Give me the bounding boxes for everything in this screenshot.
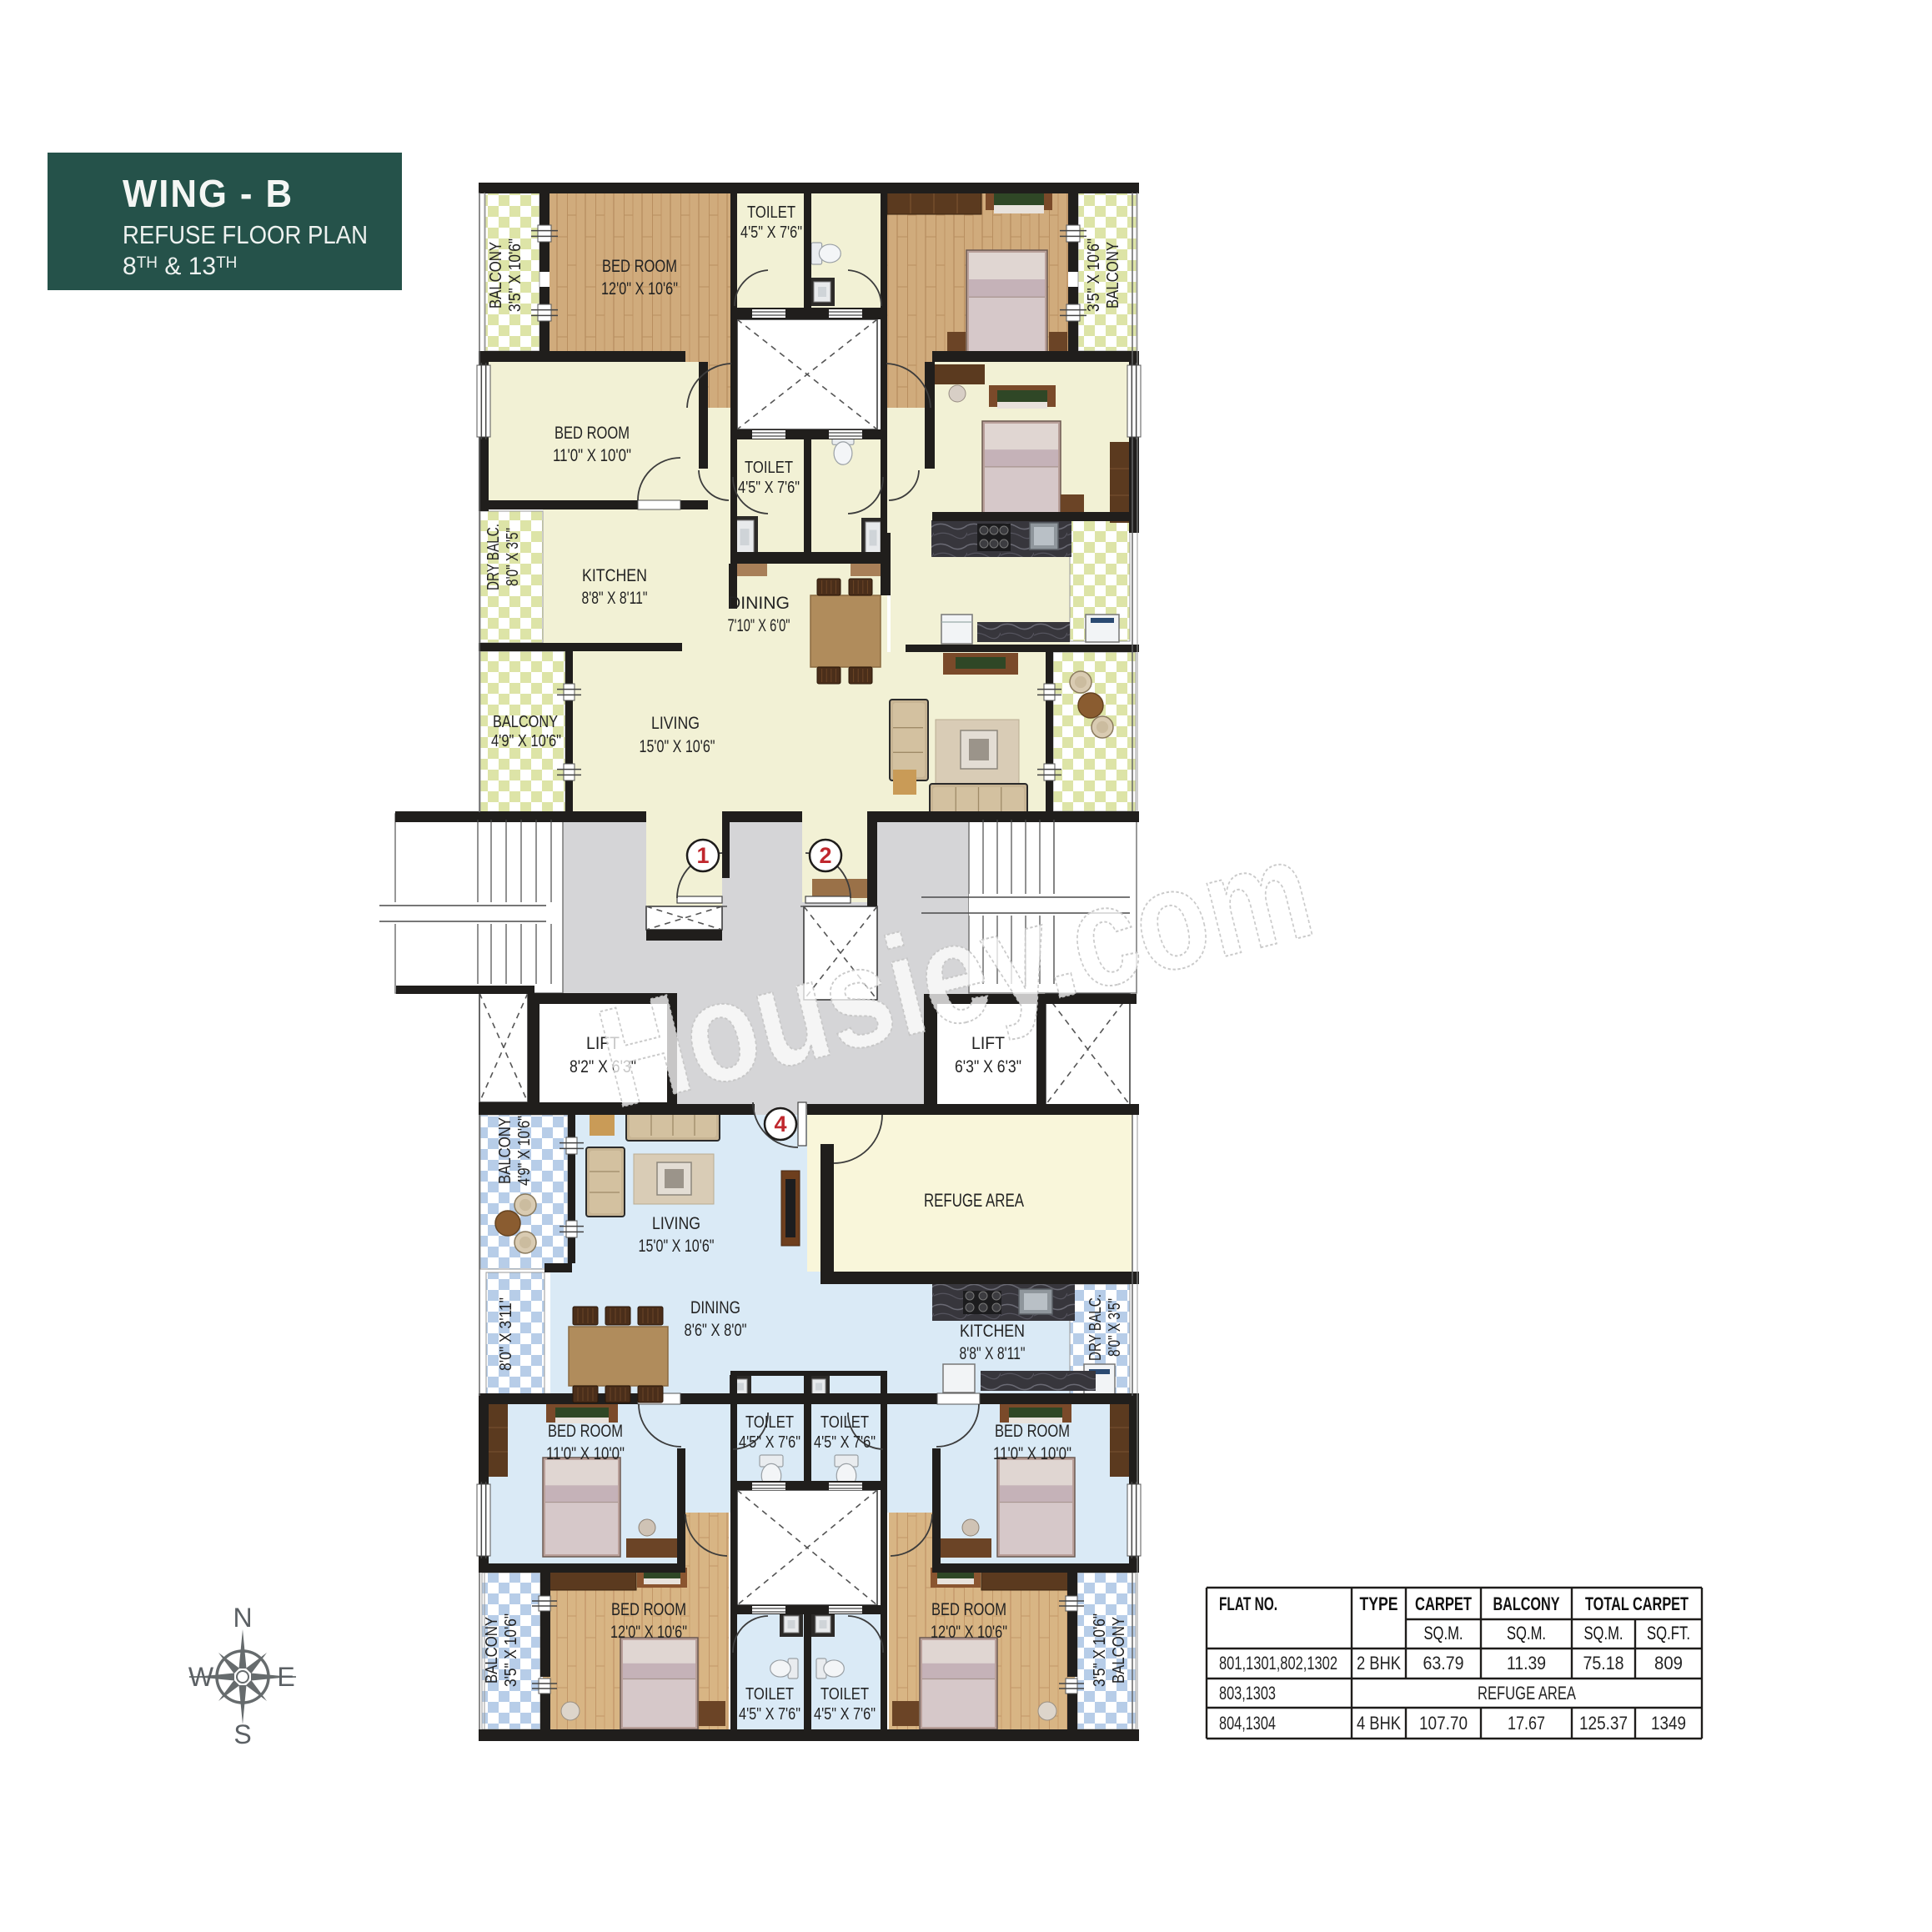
svg-text:15'0" X 10'6": 15'0" X 10'6" <box>640 737 715 756</box>
svg-text:DINING: DINING <box>728 594 790 613</box>
svg-text:TOTAL CARPET: TOTAL CARPET <box>1585 1593 1689 1614</box>
svg-text:KITCHEN: KITCHEN <box>582 566 647 585</box>
svg-text:BED ROOM: BED ROOM <box>555 424 630 443</box>
svg-text:TOILET: TOILET <box>747 203 795 222</box>
svg-text:BALCONY: BALCONY <box>487 242 505 309</box>
svg-text:LIVING: LIVING <box>652 1214 700 1233</box>
svg-text:SQ.FT.: SQ.FT. <box>1647 1623 1690 1643</box>
svg-text:LIVING: LIVING <box>651 714 700 733</box>
svg-text:3'5" X 10'6": 3'5" X 10'6" <box>502 1613 520 1687</box>
svg-text:4'9" X 10'6": 4'9" X 10'6" <box>515 1116 534 1186</box>
svg-text:BALCONY: BALCONY <box>496 1117 514 1184</box>
svg-text:BED ROOM: BED ROOM <box>548 1422 623 1441</box>
svg-text:BALCONY: BALCONY <box>1110 1617 1128 1684</box>
svg-text:6'3" X 6'3": 6'3" X 6'3" <box>955 1057 1021 1076</box>
svg-text:75.18: 75.18 <box>1583 1653 1624 1674</box>
svg-text:125.37: 125.37 <box>1579 1713 1628 1734</box>
svg-text:BALCONY: BALCONY <box>493 713 558 731</box>
svg-text:WING - B: WING - B <box>123 172 294 215</box>
svg-text:BALCONY: BALCONY <box>1104 242 1122 309</box>
svg-text:17.67: 17.67 <box>1508 1713 1545 1734</box>
svg-text:1: 1 <box>696 843 709 868</box>
svg-text:REFUSE FLOOR PLAN: REFUSE FLOOR PLAN <box>123 220 368 249</box>
svg-text:15'0" X 10'6": 15'0" X 10'6" <box>639 1237 715 1256</box>
svg-text:SQ.M.: SQ.M. <box>1584 1623 1623 1643</box>
svg-text:803,1303: 803,1303 <box>1219 1683 1276 1704</box>
svg-text:3'5" X 10'6": 3'5" X 10'6" <box>506 238 524 312</box>
svg-text:8'6" X 8'0": 8'6" X 8'0" <box>685 1321 747 1340</box>
svg-text:4'9" X 10'6": 4'9" X 10'6" <box>491 732 561 750</box>
svg-text:TOILET: TOILET <box>820 1685 869 1704</box>
svg-text:3'5" X 10'6": 3'5" X 10'6" <box>1091 1613 1109 1687</box>
svg-text:BED ROOM: BED ROOM <box>931 1600 1006 1619</box>
svg-text:11'0" X 10'0": 11'0" X 10'0" <box>546 1444 625 1463</box>
svg-text:BED ROOM: BED ROOM <box>602 257 677 276</box>
svg-text:FLAT NO.: FLAT NO. <box>1219 1593 1277 1614</box>
svg-text:107.70: 107.70 <box>1419 1713 1468 1734</box>
svg-text:4'5" X 7'6": 4'5" X 7'6" <box>739 1705 800 1724</box>
svg-text:BALCONY: BALCONY <box>483 1617 501 1684</box>
svg-text:11.39: 11.39 <box>1507 1653 1546 1674</box>
svg-text:S: S <box>233 1719 251 1749</box>
svg-text:TOILET: TOILET <box>820 1413 869 1432</box>
svg-text:7'10" X 6'0": 7'10" X 6'0" <box>728 616 790 635</box>
svg-text:TYPE: TYPE <box>1360 1593 1398 1614</box>
svg-text:8'8" X 8'11": 8'8" X 8'11" <box>582 589 648 608</box>
svg-text:REFUGE AREA: REFUGE AREA <box>924 1190 1024 1211</box>
svg-text:3'5" X 10'6": 3'5" X 10'6" <box>1085 238 1103 312</box>
svg-text:TOILET: TOILET <box>745 459 793 477</box>
svg-text:809: 809 <box>1654 1653 1683 1674</box>
svg-text:4'5" X 7'6": 4'5" X 7'6" <box>814 1705 876 1724</box>
svg-text:KITCHEN: KITCHEN <box>960 1322 1025 1341</box>
svg-text:TOILET: TOILET <box>745 1685 794 1704</box>
svg-text:2: 2 <box>819 843 831 868</box>
svg-text:11'0" X 10'0": 11'0" X 10'0" <box>553 446 631 465</box>
svg-text:12'0" X 10'6": 12'0" X 10'6" <box>601 279 678 299</box>
svg-text:4'5" X 7'6": 4'5" X 7'6" <box>740 223 802 242</box>
svg-text:4'5" X 7'6": 4'5" X 7'6" <box>739 1433 800 1452</box>
svg-text:11'0" X 10'0": 11'0" X 10'0" <box>993 1444 1071 1463</box>
svg-text:TOILET: TOILET <box>745 1413 794 1432</box>
svg-text:N: N <box>233 1603 252 1633</box>
svg-text:4 BHK: 4 BHK <box>1357 1713 1401 1734</box>
svg-text:DINING: DINING <box>690 1298 740 1317</box>
svg-text:63.79: 63.79 <box>1423 1653 1464 1674</box>
svg-text:E: E <box>277 1662 294 1692</box>
svg-text:804,1304: 804,1304 <box>1219 1713 1276 1734</box>
svg-text:BED ROOM: BED ROOM <box>995 1422 1070 1441</box>
svg-text:REFUGE AREA: REFUGE AREA <box>1478 1683 1576 1704</box>
svg-text:BED ROOM: BED ROOM <box>611 1600 686 1619</box>
svg-text:801,1301,802,1302: 801,1301,802,1302 <box>1219 1653 1337 1674</box>
svg-text:12'0" X 10'6": 12'0" X 10'6" <box>931 1623 1007 1642</box>
svg-text:4: 4 <box>774 1112 786 1137</box>
svg-text:8'0" X 3'5": 8'0" X 3'5" <box>504 528 522 586</box>
svg-text:4'5" X 7'6": 4'5" X 7'6" <box>738 479 800 497</box>
svg-text:8'0" X 3'5": 8'0" X 3'5" <box>1106 1298 1124 1357</box>
svg-text:8'0" X 3'11": 8'0" X 3'11" <box>497 1297 515 1371</box>
svg-text:DRY BALC.: DRY BALC. <box>1086 1294 1105 1361</box>
svg-text:CARPET: CARPET <box>1415 1593 1472 1614</box>
svg-text:1349: 1349 <box>1651 1713 1686 1734</box>
svg-text:SQ.M.: SQ.M. <box>1507 1623 1546 1643</box>
svg-text:W: W <box>188 1662 214 1692</box>
svg-text:8'8" X 8'11": 8'8" X 8'11" <box>960 1344 1026 1363</box>
svg-text:12'0" X 10'6": 12'0" X 10'6" <box>610 1623 687 1642</box>
svg-text:4'5" X 7'6": 4'5" X 7'6" <box>814 1433 876 1452</box>
svg-text:BALCONY: BALCONY <box>1493 1593 1560 1614</box>
svg-text:DRY BALC.: DRY BALC. <box>484 524 503 590</box>
svg-text:2 BHK: 2 BHK <box>1357 1653 1401 1674</box>
svg-text:SQ.M.: SQ.M. <box>1424 1623 1463 1643</box>
